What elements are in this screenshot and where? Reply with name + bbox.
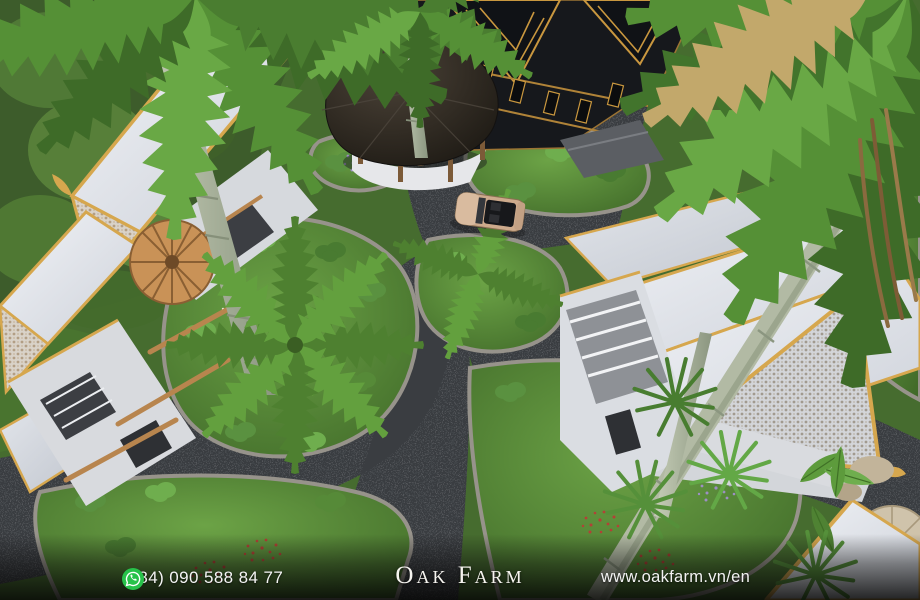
scene-canvas bbox=[0, 0, 920, 600]
phone-number: (+84) 090 588 84 77 bbox=[122, 568, 283, 588]
island-palm-crown bbox=[166, 216, 424, 474]
whatsapp-contact[interactable]: (+84) 090 588 84 77 bbox=[122, 568, 283, 588]
footer-banner: (+84) 090 588 84 77 Oak Farm www.oakfarm… bbox=[0, 534, 920, 600]
website-url[interactable]: www.oakfarm.vn/en bbox=[601, 568, 750, 587]
resort-aerial-render: (+84) 090 588 84 77 Oak Farm www.oakfarm… bbox=[0, 0, 920, 600]
brand-title: Oak Farm bbox=[395, 562, 524, 590]
whatsapp-icon bbox=[122, 568, 144, 590]
